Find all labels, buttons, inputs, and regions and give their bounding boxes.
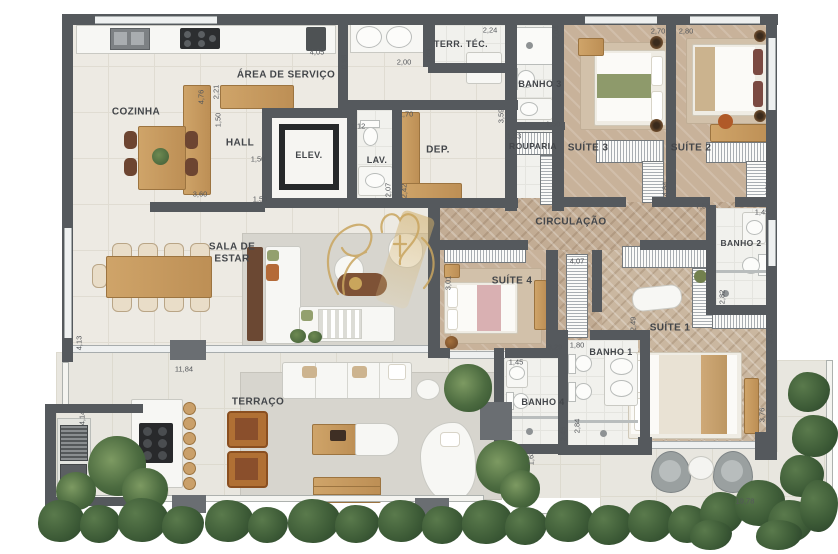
dimension-label: 3,53 [766,330,775,345]
sink [610,380,633,397]
dimension-label: 4,07 [570,257,585,266]
dimension-label: 4,84 [764,182,773,197]
room-label-rouparia: ROUPARIA [509,142,557,152]
bbq-grill [60,425,88,461]
room-label-sala-line1: SALA DE [209,241,255,253]
stove-cooktop [180,28,220,49]
dimension-label: 7,56 [696,202,711,211]
sink [509,366,525,380]
dining-chair [92,264,107,288]
dimension-label: 1,12 [351,122,366,131]
burner [184,40,191,47]
kitchen-cabinet-row [220,85,294,109]
room-label-area-servico: ÁREA DE SERVIÇO [237,69,335,81]
shower-divider [716,270,766,273]
room-label-sala-line2: ESTAR [214,253,249,265]
shrub [162,506,204,544]
burner [143,439,152,448]
room-label-cozinha: COZINHA [112,106,160,118]
suite3-desk [578,38,604,56]
sink [520,102,538,116]
window [768,38,776,110]
dimension-label: 1,50 [253,195,268,204]
dimension-label: 2,49 [629,317,638,332]
window-suite1 [650,441,756,449]
tray-dark [330,430,346,441]
room-label-banho3: BANHO 3 [518,79,561,89]
dimension-label: 3,76 [758,408,767,423]
pillow-orange [266,264,279,281]
bed-runner-wood [701,355,727,434]
shower-divider [504,416,558,419]
pillow-green [267,250,279,261]
shower-drain [600,430,607,437]
room-label-circulacao: CIRCULAÇÃO [535,216,606,228]
seat [659,460,681,482]
dimension-label: 4,14 [78,411,87,426]
pillow-tan [352,366,367,378]
room-label-banho2: BANHO 2 [720,239,761,249]
dimension-label: 1,45 [509,358,524,367]
palm-plant [500,470,540,508]
wall [640,240,712,250]
laundry-tub [356,26,382,48]
shrub [422,506,464,544]
shrub [756,520,802,550]
wall [666,25,676,207]
dimension-label: 1,03 [425,49,434,64]
wall [706,205,716,310]
window [690,16,760,24]
burner [158,451,167,460]
brand-watermark [310,198,450,306]
dimension-label: 2,07 [384,183,393,198]
bar-stool [183,402,196,415]
dimension-label: 2,84 [573,419,582,434]
dining-chair [138,296,158,312]
dimension-label: 2,24 [483,26,498,35]
nightstand-lamp [650,119,663,132]
blanket-pink [477,285,501,331]
wall [45,404,143,413]
floor-plant [290,329,306,343]
dimension-label: 3,60 [193,190,208,199]
shrub [588,505,632,545]
dimension-label: 1,50 [251,155,266,164]
room-label-elev: ELEV. [295,150,322,160]
room-label-suite2: SUÍTE 2 [671,142,712,154]
wall [706,305,776,315]
sink-basin [114,32,127,45]
seat [721,460,743,482]
dimension-label: 0,98 [340,55,349,70]
nightstand-lamp [754,30,766,42]
kitchen-chair [185,131,198,149]
wood-armchair [227,411,268,448]
shrub [628,500,674,542]
wall [735,197,777,207]
shrub [545,500,593,542]
wall [338,100,518,110]
burner [184,31,191,38]
burner [158,427,167,436]
dimension-label: 2,70 [651,27,666,36]
dimension-label: 4,84 [661,182,670,197]
floor-plant [308,331,322,343]
side-table [416,379,440,400]
burner [198,40,205,47]
cushion-seam [379,363,380,398]
wall [552,25,564,211]
shrub [80,505,120,543]
shrub [118,498,168,542]
sliding-door [170,340,206,360]
bidet-bowl [575,383,592,400]
suite1-shelf [744,378,759,434]
dimension-label: 4,05 [310,48,325,57]
dimension-label: 2,21 [212,85,221,100]
bar-stool [183,432,196,445]
dimension-label: 11,84 [175,365,193,374]
shrub [690,520,732,550]
pillow [651,56,663,86]
wall [428,348,450,358]
shrub [205,500,253,542]
dimension-label: 3,59 [497,109,506,124]
pillow-maroon [753,49,763,75]
kitchen-chair [185,158,198,176]
corridor-closet [566,254,588,338]
wood-armchair [227,451,268,488]
dimension-label: 3,01 [444,276,453,291]
sink [746,220,763,235]
dimension-label: 1,50 [546,120,561,129]
room-label-lav: LAV. [367,155,388,165]
suite2-wardrobe [706,142,770,163]
wall [505,25,517,211]
wall [440,240,528,250]
shrub [505,507,547,545]
room-label-suite1: SUÍTE 1 [650,322,691,334]
wall [755,432,777,460]
dining-table [106,256,212,298]
dimension-label: 1,53 [507,132,522,141]
window [585,16,657,24]
dimension-label: 3,29 [548,343,563,352]
dimension-label: 19,78 [736,497,755,506]
lounger-pillow [440,432,460,447]
window [95,16,217,24]
cushion-seam [347,363,348,398]
pillow [651,91,663,121]
dimension-label: 1,80 [570,341,585,350]
burner [158,439,167,448]
kitchen-chair [124,131,137,149]
nightstand-lamp [754,110,766,122]
burner [198,31,205,38]
bed-runner-green [597,74,651,98]
dimension-label: 1,45 [755,208,770,217]
outdoor-table [688,456,714,480]
window-sala-terrace [66,345,430,353]
window [768,220,776,266]
kitchen-sink [110,28,150,50]
pillow-maroon [753,81,763,107]
dimension-label: 2,45 [559,427,568,442]
desk-chair [718,114,733,129]
blanket [695,47,715,111]
shrub [335,505,379,543]
burner [209,35,216,42]
seat [235,458,258,480]
shrub [248,507,288,543]
slat [314,486,380,487]
wall [428,63,514,73]
pillow-white [388,364,406,380]
shrub [800,480,838,532]
dining-chair [164,296,184,312]
shrub [288,499,340,543]
window [64,228,72,338]
dimension-label: 2,82 [718,290,727,305]
pillow-tan [302,366,317,378]
bar-stool [183,417,196,430]
wall [45,404,56,506]
sink-basin [131,32,144,45]
room-label-banho4: BANHO 4 [521,397,564,407]
pillow-green [301,310,313,321]
burner [143,427,152,436]
blanket [659,355,701,434]
seat [235,418,258,440]
room-label-suite3: SUÍTE 3 [568,142,609,154]
dimension-label: 1,70 [399,110,414,119]
terrace-pillar [480,402,512,440]
dimension-label: 2,04 [552,26,561,41]
dimension-label: 4,76 [197,90,206,105]
room-label-terr-tec: TERR. TÉC. [434,39,488,49]
lav-sink [365,173,385,188]
dimension-label: 4,13 [75,336,84,351]
nightstand-lamp [650,36,663,49]
floor-plan: COZINHA ÁREA DE SERVIÇO HALL ELEV. LAV. … [0,0,838,554]
wall [564,197,626,207]
sofa-throw [318,309,362,339]
bar-stool [183,462,196,475]
wall [592,250,602,312]
suite3-bed [594,50,666,126]
pillow [447,309,458,330]
suite4-bed [444,282,518,334]
table-plant [152,148,169,165]
bar-stool [183,477,196,490]
sink [610,358,633,375]
dimension-label: 2,80 [679,27,694,36]
dimension-label: 1,63 [527,451,536,466]
parapet [62,362,69,408]
dining-chair [190,296,210,312]
suite2-bed [692,44,770,116]
dining-chair [112,296,132,312]
room-label-hall: HALL [226,137,254,149]
shower-drain [526,428,533,435]
terrace-coffee-table-marble [355,423,399,456]
wall [150,202,265,212]
shrub [38,500,84,542]
shrub [378,500,426,542]
kitchen-chair [124,158,137,176]
palm-plant [444,364,492,412]
room-label-banho1: BANHO 1 [589,347,632,357]
wall [638,437,652,455]
dimension-label: 1,50 [214,113,223,128]
dimension-label: 2,00 [397,58,412,67]
shower-drain [526,42,533,49]
room-label-terraco: TERRAÇO [232,396,284,408]
wall [558,445,650,455]
laundry-tub [386,26,412,48]
room-label-dep: DEP. [426,144,450,156]
toilet-bowl [575,355,592,372]
bar-stool [183,447,196,460]
room-label-suite4: SUÍTE 4 [492,275,533,287]
dimension-label: 2,42 [400,184,409,199]
